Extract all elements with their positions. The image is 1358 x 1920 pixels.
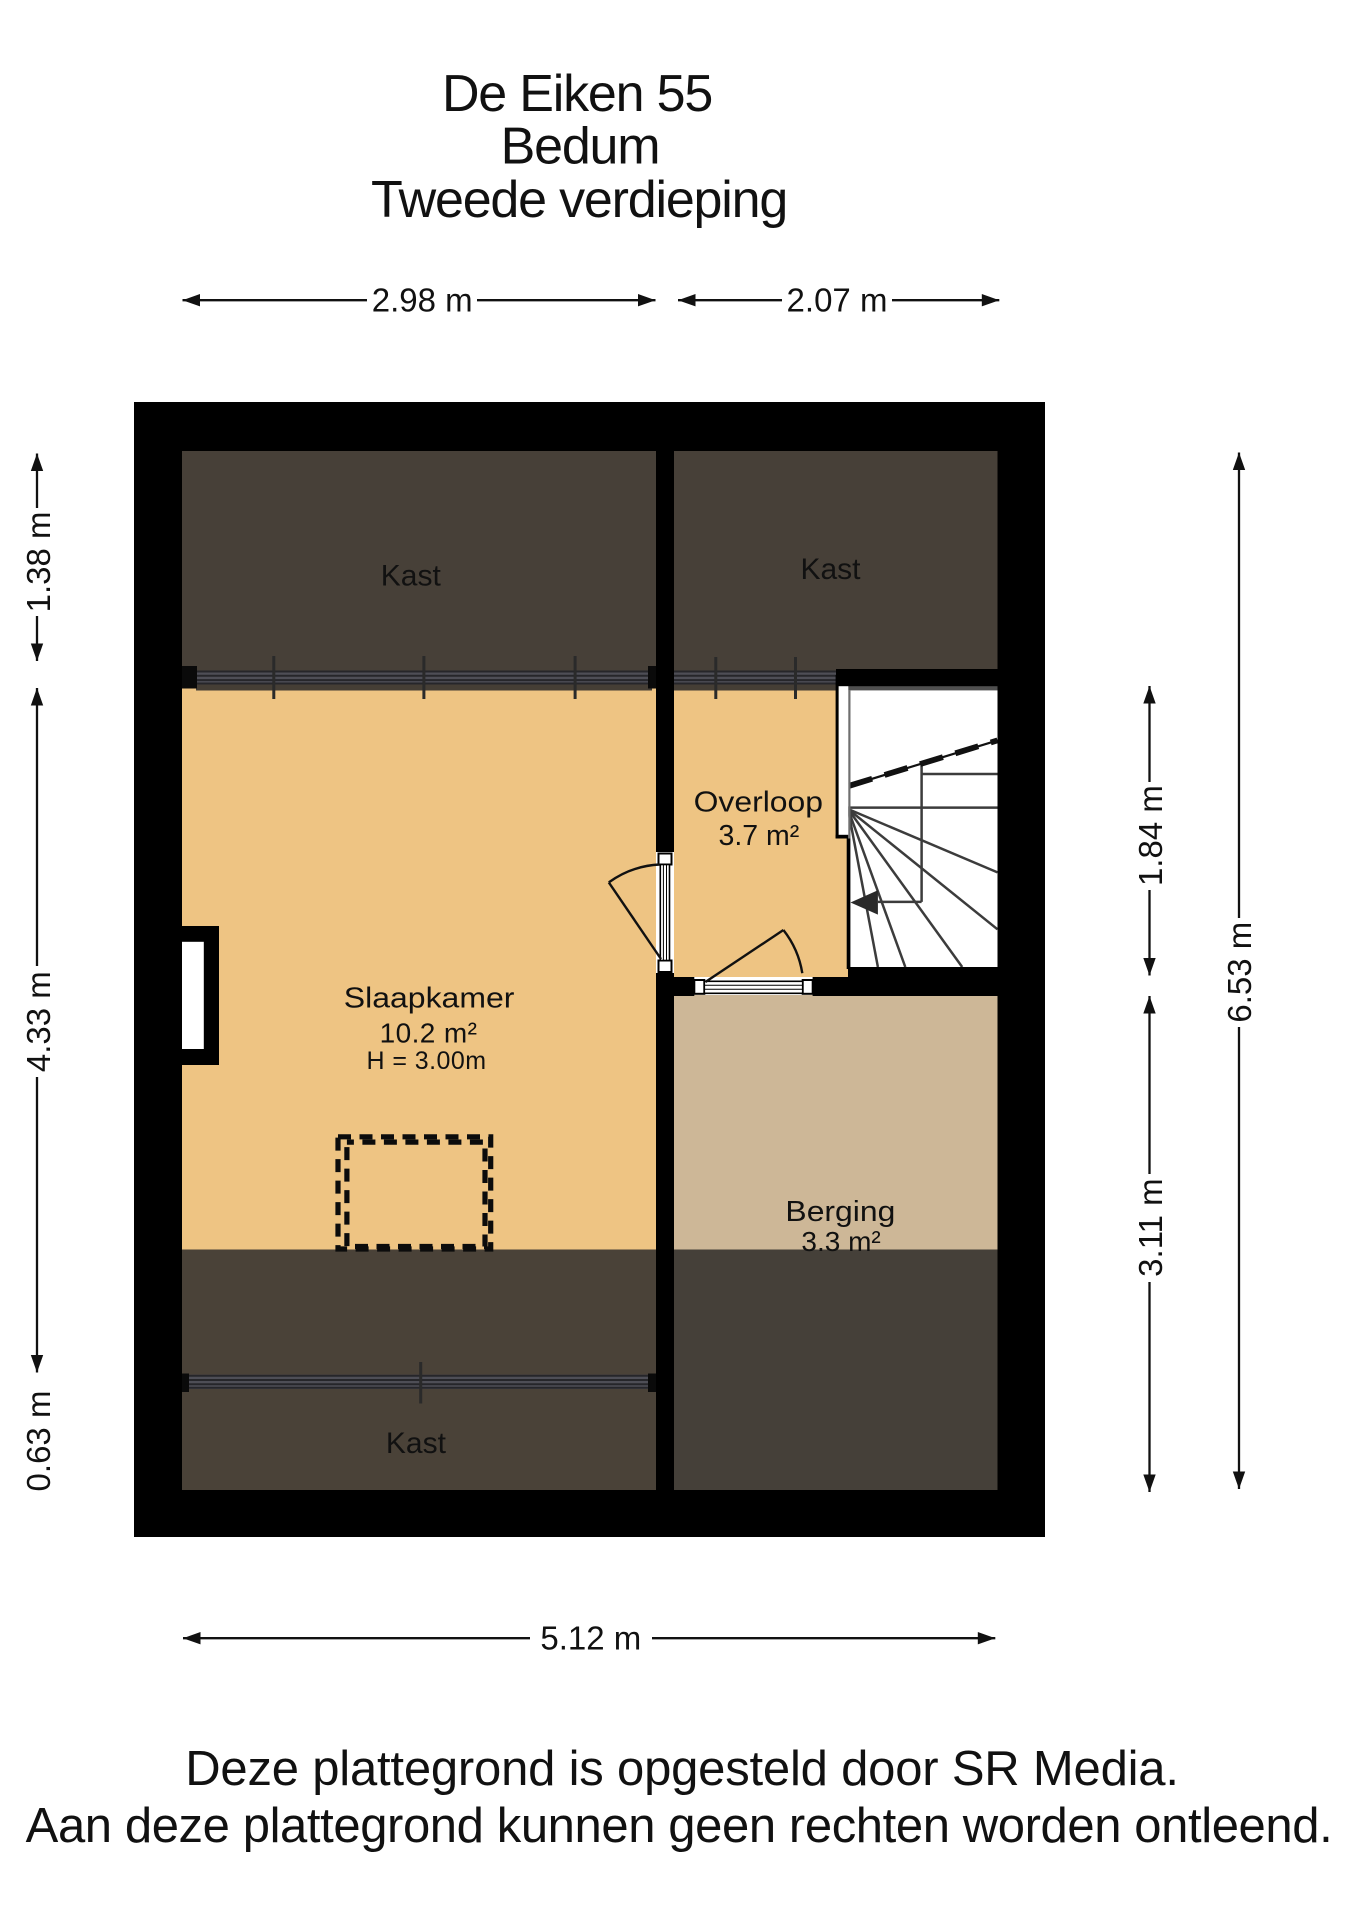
- svg-text:Kast: Kast: [386, 1427, 447, 1460]
- svg-text:Aan deze plattegrond kunnen ge: Aan deze plattegrond kunnen geen rechten…: [26, 1799, 1333, 1853]
- svg-text:3.3 m²: 3.3 m²: [801, 1226, 880, 1257]
- svg-text:3.7 m²: 3.7 m²: [719, 820, 800, 852]
- svg-text:1.38 m: 1.38 m: [20, 511, 57, 612]
- svg-text:Bedum: Bedum: [501, 118, 660, 176]
- svg-text:0.63 m: 0.63 m: [20, 1391, 57, 1492]
- svg-text:Tweede verdieping: Tweede verdieping: [371, 171, 787, 229]
- svg-text:2.98 m: 2.98 m: [372, 282, 473, 319]
- svg-text:4.33 m: 4.33 m: [20, 971, 57, 1072]
- svg-text:H = 3.00m: H = 3.00m: [366, 1047, 486, 1075]
- svg-text:De Eiken 55: De Eiken 55: [442, 65, 712, 123]
- svg-text:Kast: Kast: [381, 560, 442, 593]
- svg-text:1.84 m: 1.84 m: [1132, 785, 1169, 886]
- svg-text:Overloop: Overloop: [694, 787, 823, 819]
- svg-text:Kast: Kast: [800, 553, 861, 586]
- svg-text:10.2 m²: 10.2 m²: [380, 1018, 478, 1049]
- svg-text:6.53 m: 6.53 m: [1221, 922, 1258, 1023]
- svg-text:Slaapkamer: Slaapkamer: [344, 983, 515, 1015]
- svg-text:2.07 m: 2.07 m: [787, 282, 888, 319]
- svg-text:5.12 m: 5.12 m: [540, 1620, 641, 1657]
- svg-text:Deze plattegrond is opgesteld: Deze plattegrond is opgesteld door SR Me…: [185, 1742, 1179, 1796]
- svg-text:3.11 m: 3.11 m: [1132, 1178, 1169, 1276]
- svg-text:Berging: Berging: [785, 1196, 895, 1228]
